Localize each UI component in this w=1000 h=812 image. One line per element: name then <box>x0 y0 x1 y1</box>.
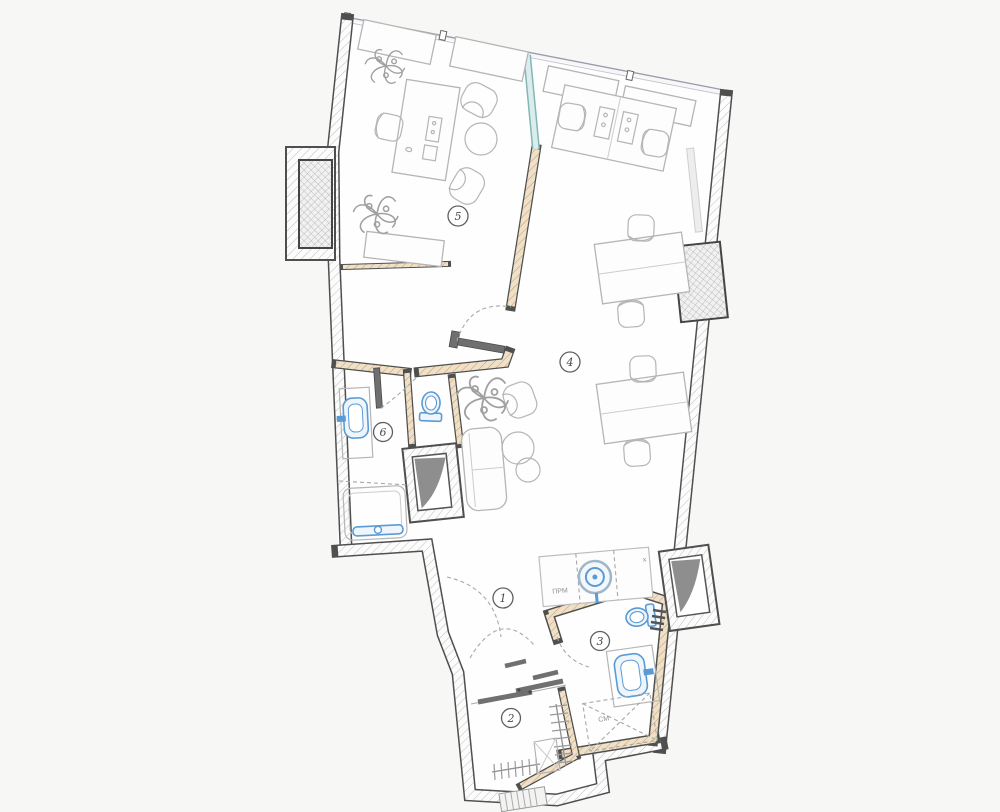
room-number-badge-5: 5 <box>448 206 468 226</box>
room-number: 1 <box>500 592 507 605</box>
room-number-badge-3: 3 <box>591 632 610 651</box>
room-number: 5 <box>455 210 462 223</box>
vent-shaft-right <box>659 545 720 631</box>
column-left <box>286 147 335 260</box>
room-number-badge-6: 6 <box>374 423 393 442</box>
faucet-icon <box>337 416 346 422</box>
desk-group <box>594 232 689 304</box>
sofa <box>461 426 508 511</box>
room-number: 4 <box>566 356 574 369</box>
room-number: 6 <box>380 426 387 439</box>
appliance-counter: ПРМ х <box>539 547 653 607</box>
room-number: 2 <box>507 712 515 725</box>
room-number-badge-2: 2 <box>502 709 521 728</box>
room-number-badge-1: 1 <box>493 588 513 608</box>
counter-label: ПРМ <box>552 587 568 595</box>
room-number: 3 <box>597 635 604 648</box>
desk-group <box>596 372 691 444</box>
floor-plan: 5 4 <box>0 0 1000 812</box>
vent-shaft-mid <box>402 443 463 522</box>
room-number-badge-4: 4 <box>560 352 580 372</box>
floor-plan-canvas: 5 4 <box>0 0 1000 812</box>
